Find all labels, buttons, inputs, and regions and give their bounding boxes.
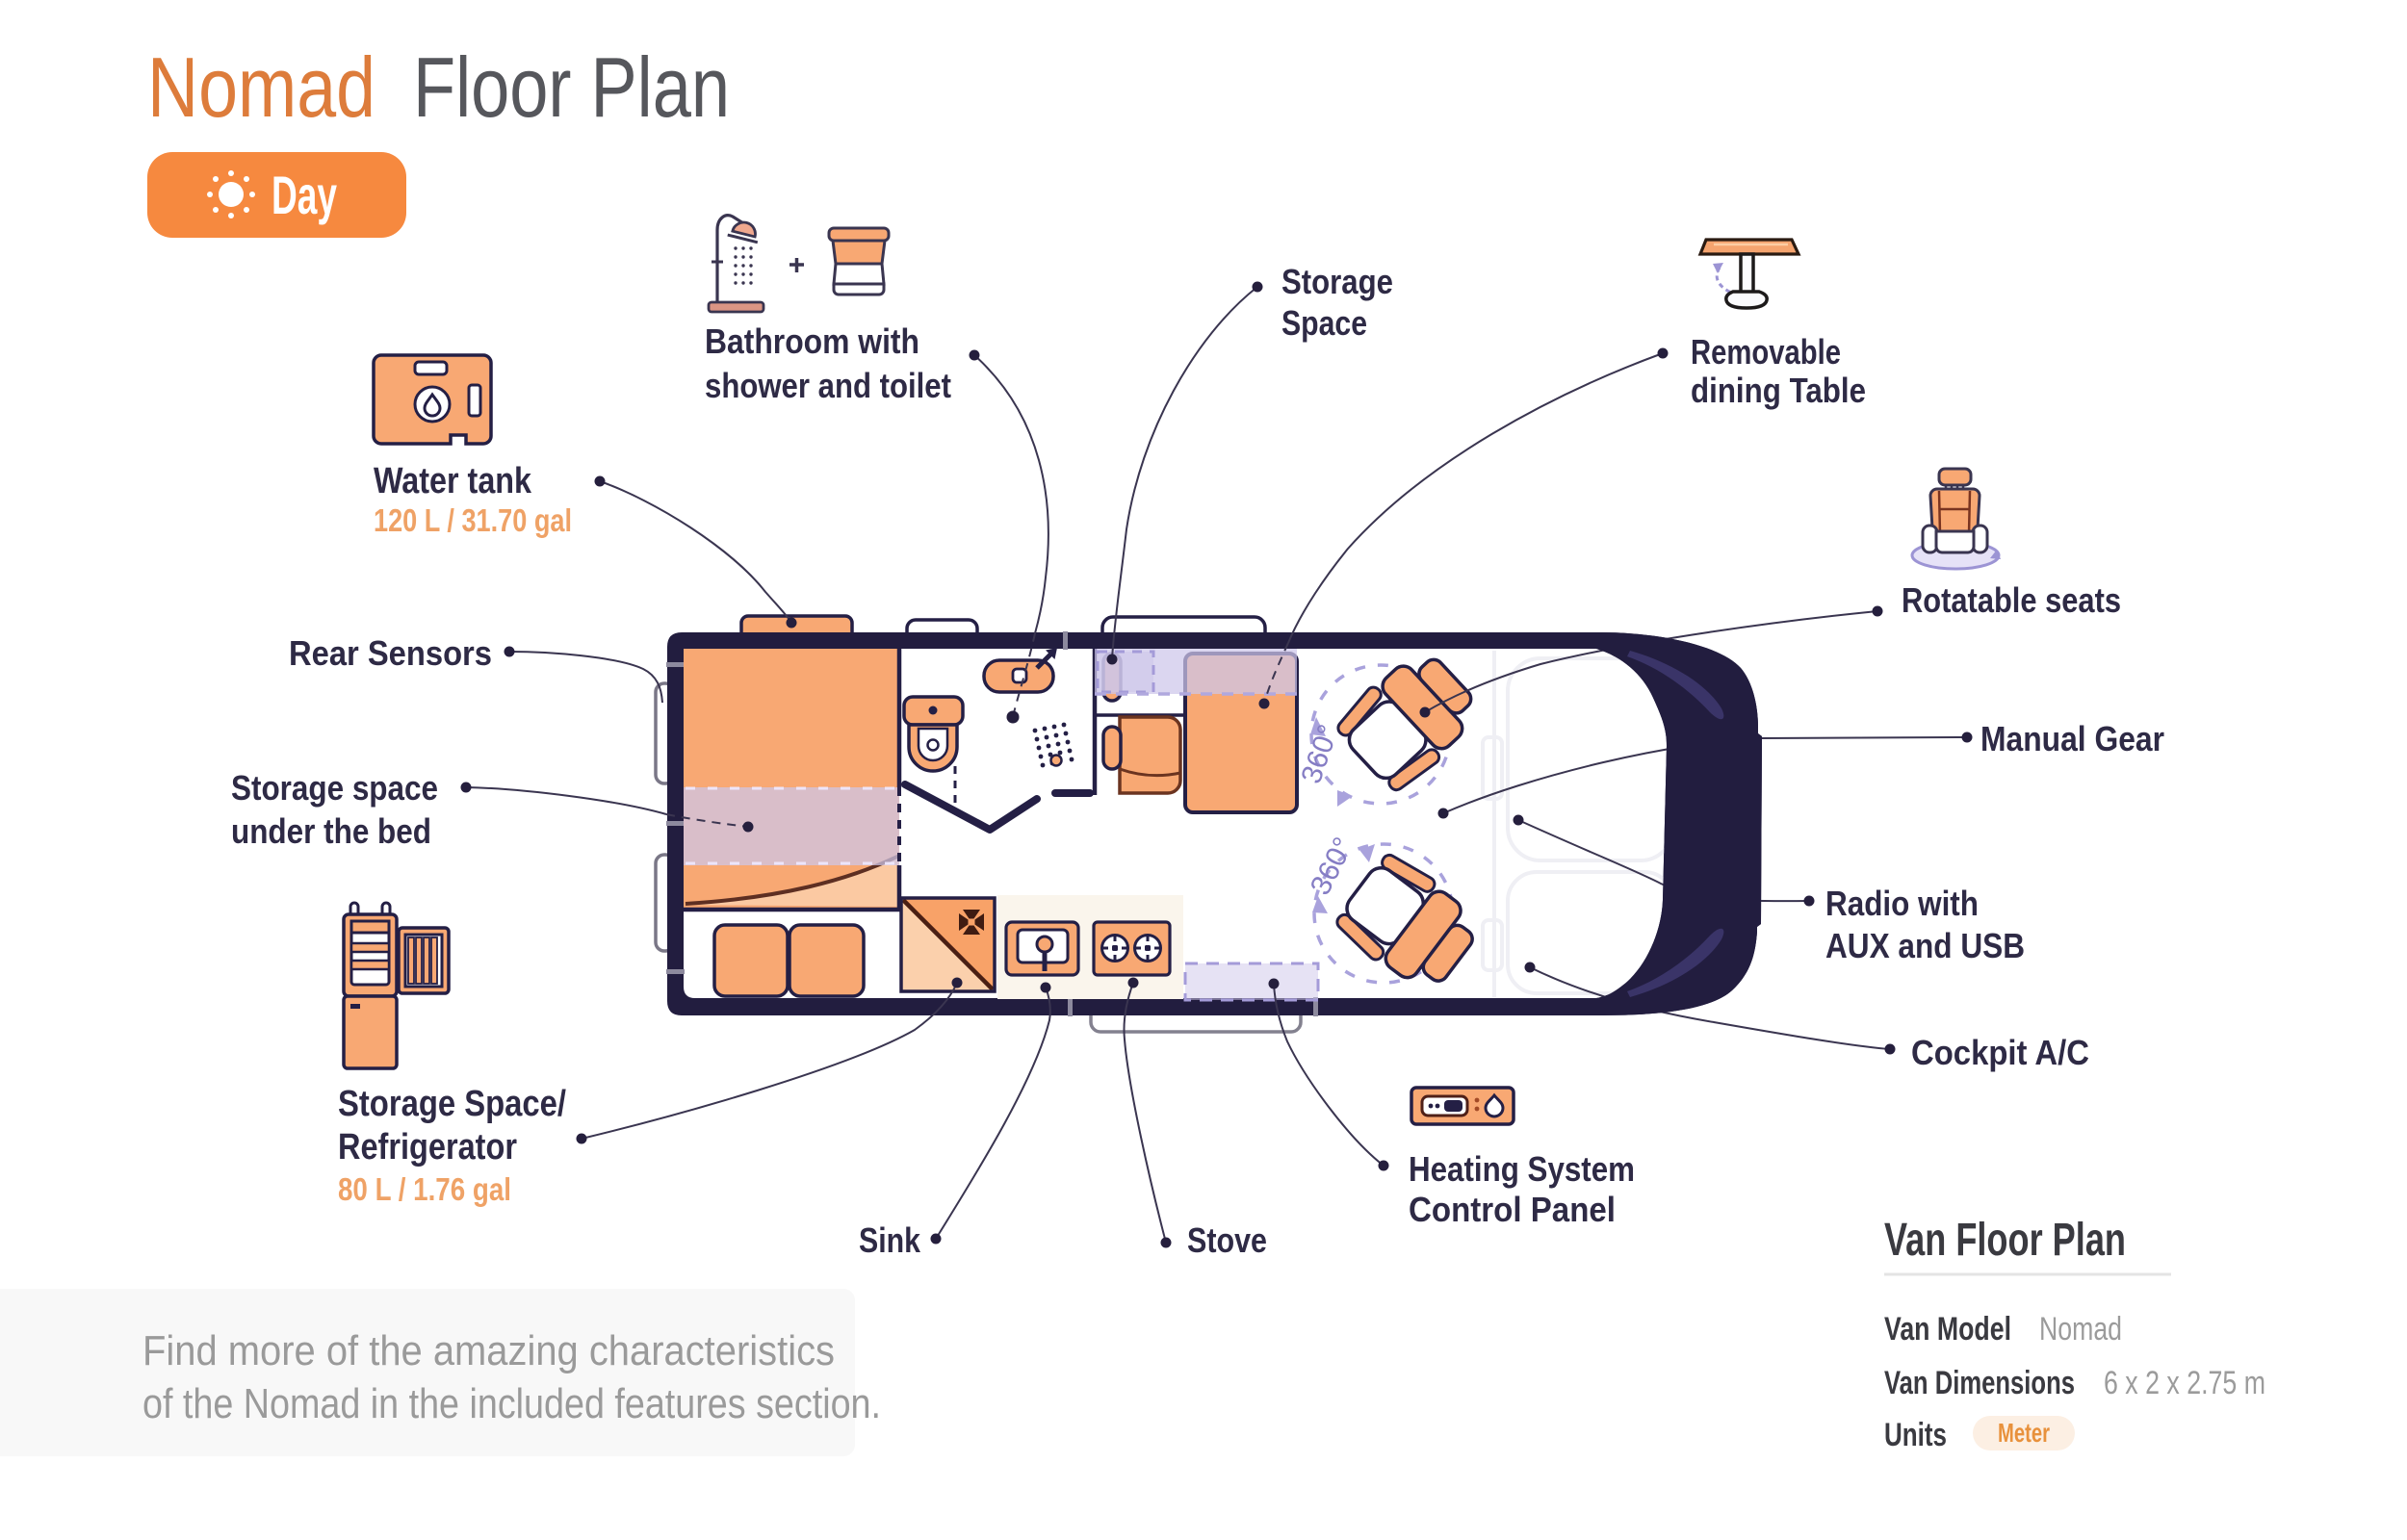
svg-text:Storage: Storage: [1281, 262, 1393, 301]
svg-text:Rotatable seats: Rotatable seats: [1902, 580, 2121, 620]
svg-text:of the Nomad in the included f: of the Nomad in the included features se…: [142, 1380, 881, 1427]
svg-text:Van Dimensions: Van Dimensions: [1884, 1365, 2075, 1401]
svg-text:Storage space: Storage space: [231, 768, 438, 808]
svg-text:6 x 2 x 2.75 m: 6 x 2 x 2.75 m: [2104, 1365, 2265, 1401]
svg-text:Cockpit A/C: Cockpit A/C: [1911, 1033, 2089, 1072]
svg-text:Water tank: Water tank: [374, 461, 532, 501]
svg-text:Control Panel: Control Panel: [1409, 1190, 1616, 1229]
svg-text:Space: Space: [1281, 303, 1367, 343]
svg-text:120 L / 31.70 gal: 120 L / 31.70 gal: [374, 502, 572, 538]
svg-text:Radio with: Radio with: [1825, 884, 1979, 923]
svg-text:Bathroom with: Bathroom with: [705, 321, 919, 361]
svg-text:Van Model: Van Model: [1884, 1311, 2011, 1347]
svg-text:Units: Units: [1884, 1417, 1947, 1453]
svg-text:Day: Day: [272, 165, 337, 225]
svg-text:Nomad: Nomad: [2039, 1311, 2122, 1347]
svg-text:AUX and USB: AUX and USB: [1825, 926, 2025, 965]
svg-text:80 L / 1.76 gal: 80 L / 1.76 gal: [338, 1171, 511, 1207]
svg-text:under the bed: under the bed: [231, 811, 431, 851]
svg-text:Floor Plan: Floor Plan: [413, 39, 730, 135]
svg-text:Manual Gear: Manual Gear: [1980, 719, 2164, 758]
svg-text:Refrigerator: Refrigerator: [338, 1127, 517, 1168]
svg-text:Meter: Meter: [1998, 1418, 2050, 1448]
svg-text:Heating System: Heating System: [1409, 1149, 1635, 1189]
svg-text:dining Table: dining Table: [1691, 371, 1866, 410]
svg-text:Rear Sensors: Rear Sensors: [289, 633, 492, 673]
svg-text:Removable: Removable: [1691, 332, 1841, 372]
svg-text:Nomad: Nomad: [147, 39, 375, 135]
svg-text:Find more of the amazing chara: Find more of the amazing characteristics: [142, 1327, 835, 1374]
svg-text:shower and toilet: shower and toilet: [705, 366, 951, 405]
svg-text:Stove: Stove: [1187, 1220, 1267, 1260]
svg-text:Sink: Sink: [859, 1220, 921, 1260]
svg-text:Van Floor Plan: Van Floor Plan: [1884, 1215, 2126, 1266]
svg-text:Storage Space/: Storage Space/: [338, 1084, 566, 1124]
